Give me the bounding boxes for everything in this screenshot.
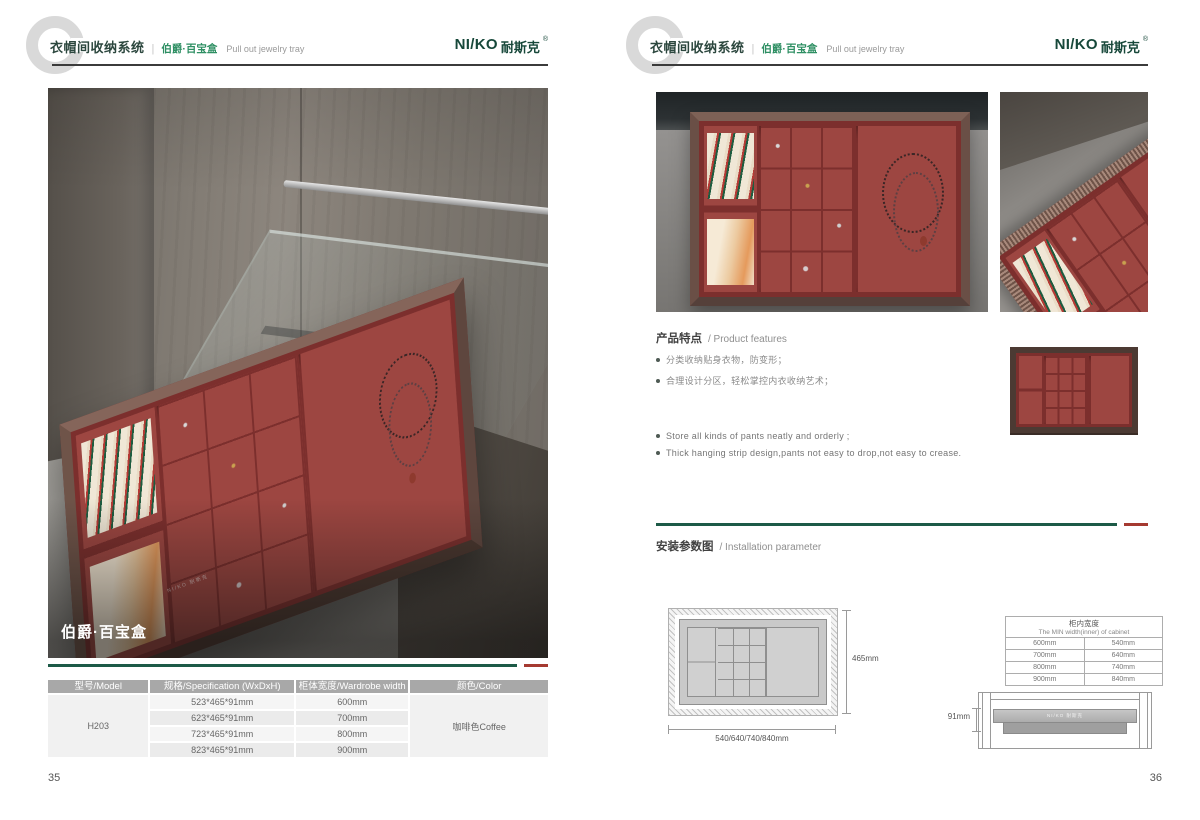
- features-title-en: / Product features: [708, 334, 787, 345]
- feature-text: 分类收纳贴身衣物，防变形；: [666, 353, 787, 366]
- brand-logo-latin: NI/KO: [455, 36, 498, 53]
- tray-profile: NI/KO 耐斯克: [993, 709, 1137, 723]
- feature-text: Thick hanging strip design,pants not eas…: [666, 448, 961, 458]
- detail-photo-corner: [1000, 92, 1148, 312]
- min-width-table: 柜内宽度 The MIN width(inner) of cabinet 600…: [1005, 616, 1163, 686]
- min-width-cell: 600mm: [1006, 638, 1085, 650]
- header-subtitle: Pull out jewelry tray: [826, 44, 904, 54]
- bullet-icon: [656, 358, 660, 362]
- tray-zone-grid: [761, 126, 856, 292]
- header-series: 伯爵·百宝盒: [161, 41, 217, 56]
- min-width-header: 柜内宽度 The MIN width(inner) of cabinet: [1006, 617, 1163, 638]
- header-title: 衣帽间收纳系统 | 伯爵·百宝盒 Pull out jewelry tray: [650, 37, 904, 56]
- feature-text: 合理设计分区，轻松掌控内衣收纳艺术；: [666, 374, 833, 387]
- width-dimension-label: 540/640/740/840mm: [668, 734, 836, 743]
- brand-logo-zh: 耐斯克: [501, 37, 540, 56]
- width-cell: 800mm: [296, 727, 408, 741]
- dimension-line-width: [668, 729, 836, 730]
- spec-cell: 823*465*91mm: [150, 743, 294, 757]
- column-header: 颜色/Color: [410, 680, 548, 693]
- column-header: 型号/Model: [48, 680, 148, 693]
- feature-item: Thick hanging strip design,pants not eas…: [656, 448, 961, 458]
- min-width-row: 600mm 540mm: [1006, 638, 1163, 650]
- tray-zone-open: [858, 126, 956, 292]
- brand-logo: NI/KO 耐斯克 ®: [455, 36, 548, 56]
- page-number: 36: [1150, 772, 1162, 784]
- features-title-zh: 产品特点: [656, 330, 702, 346]
- jewelry-tray-render: [1010, 347, 1138, 433]
- top-view-diagram: [668, 608, 838, 716]
- column-color: 颜色/Color 咖啡色Coffee: [410, 680, 548, 757]
- depth-dimension-label: 465mm: [852, 654, 879, 663]
- feature-item: 分类收纳贴身衣物，防变形；: [656, 353, 833, 366]
- feature-text: Store all kinds of pants neatly and orde…: [666, 431, 850, 441]
- tray-zone-left: [688, 628, 716, 696]
- column-header: 柜体宽度/Wardrobe width: [296, 680, 408, 693]
- header-rule: [52, 64, 548, 66]
- tray-body-profile: [1003, 722, 1127, 734]
- min-width-cell: 700mm: [1006, 650, 1085, 662]
- divider-green: [48, 664, 517, 667]
- width-cell: 600mm: [296, 695, 408, 709]
- spec-cell: 623*465*91mm: [150, 711, 294, 725]
- detail-photo-top-view: [656, 92, 988, 312]
- tray-zone-grid: [1046, 356, 1089, 424]
- brand-logo-latin: NI/KO: [1055, 36, 1098, 53]
- feature-item: Store all kinds of pants neatly and orde…: [656, 431, 961, 441]
- color-cell: 咖啡色Coffee: [410, 695, 548, 757]
- diagram-compartments: [688, 628, 818, 696]
- scarf-decor: [707, 133, 754, 199]
- features-bullets-en: Store all kinds of pants neatly and orde…: [656, 431, 961, 458]
- installation-title-zh: 安装参数图: [656, 538, 714, 554]
- header-separator: |: [752, 43, 755, 55]
- dimension-line-height: [976, 708, 977, 732]
- header-separator: |: [152, 43, 155, 55]
- hero-photo: NI/KO 耐斯克 伯爵·百宝盒: [48, 88, 548, 658]
- jewelry-tray: [690, 112, 970, 306]
- installation-title: 安装参数图 / Installation parameter: [656, 538, 821, 554]
- accent-divider: [656, 523, 1148, 526]
- spec-table: 型号/Model H203 规格/Specification (WxDxH) 5…: [48, 680, 548, 757]
- model-cell: H203: [48, 695, 148, 757]
- tray-zone-open: [769, 628, 818, 696]
- min-width-cell: 800mm: [1006, 662, 1085, 674]
- spec-cell: 723*465*91mm: [150, 727, 294, 741]
- tray-compartments: [704, 126, 956, 292]
- registered-mark: ®: [1143, 36, 1148, 43]
- width-cell: 900mm: [296, 743, 408, 757]
- min-width-header-row: 柜内宽度 The MIN width(inner) of cabinet: [1006, 617, 1163, 638]
- page-35: 衣帽间收纳系统 | 伯爵·百宝盒 Pull out jewelry tray N…: [0, 0, 600, 820]
- diagram-tray-frame: [679, 619, 827, 705]
- tray-zone-open: [1091, 356, 1129, 424]
- cabinet-top-line: [990, 699, 1140, 700]
- header-rule: [652, 64, 1148, 66]
- spec-cell: 523*465*91mm: [150, 695, 294, 709]
- registered-mark: ®: [543, 36, 548, 43]
- divider-red: [524, 664, 548, 667]
- bullet-icon: [656, 434, 660, 438]
- min-width-row: 900mm 840mm: [1006, 674, 1163, 686]
- necklace-decor: [893, 172, 939, 252]
- min-width-cell: 540mm: [1084, 638, 1163, 650]
- accent-divider: [48, 664, 548, 667]
- column-wardrobe-width: 柜体宽度/Wardrobe width 600mm 700mm 800mm 90…: [296, 680, 408, 757]
- product-thumbnail: [1008, 346, 1140, 434]
- bullet-icon: [656, 451, 660, 455]
- width-cell: 700mm: [296, 711, 408, 725]
- header-title: 衣帽间收纳系统 | 伯爵·百宝盒 Pull out jewelry tray: [50, 37, 304, 56]
- min-width-cell: 840mm: [1084, 674, 1163, 686]
- page-36: 衣帽间收纳系统 | 伯爵·百宝盒 Pull out jewelry tray N…: [600, 0, 1200, 820]
- catalog-spread: 衣帽间收纳系统 | 伯爵·百宝盒 Pull out jewelry tray N…: [0, 0, 1200, 820]
- height-dimension-label: 91mm: [938, 712, 970, 721]
- min-width-row: 700mm 640mm: [1006, 650, 1163, 662]
- tray-compartments: [1019, 356, 1129, 424]
- min-width-header-zh: 柜内宽度: [1006, 618, 1162, 629]
- brand-logo: NI/KO 耐斯克 ®: [1055, 36, 1148, 56]
- cabinet-side-panel: [1139, 693, 1148, 748]
- tray-zone-left: [704, 126, 759, 292]
- tray-brand-text: NI/KO 耐斯克: [1047, 713, 1083, 719]
- header-subtitle: Pull out jewelry tray: [226, 44, 304, 54]
- bullet-icon: [656, 379, 660, 383]
- page-number: 35: [48, 772, 60, 784]
- product-name-label: 伯爵·百宝盒: [61, 621, 147, 642]
- features-title: 产品特点 / Product features: [656, 330, 787, 346]
- column-specification: 规格/Specification (WxDxH) 523*465*91mm 62…: [150, 680, 294, 757]
- photo-vignette: [48, 88, 548, 658]
- installation-title-en: / Installation parameter: [720, 542, 822, 553]
- min-width-cell: 740mm: [1084, 662, 1163, 674]
- side-view-diagram: NI/KO 耐斯克: [978, 692, 1152, 749]
- dimension-line-depth: [846, 610, 847, 714]
- tray-zone-grid: [718, 628, 767, 696]
- min-width-cell: 640mm: [1084, 650, 1163, 662]
- divider-green: [656, 523, 1117, 526]
- divider-red: [1124, 523, 1148, 526]
- column-model: 型号/Model H203: [48, 680, 148, 757]
- tray-zone-left: [1019, 356, 1044, 424]
- bead-decor: [920, 236, 927, 246]
- header-category: 衣帽间收纳系统: [50, 37, 145, 56]
- features-bullets-zh: 分类收纳贴身衣物，防变形； 合理设计分区，轻松掌控内衣收纳艺术；: [656, 353, 833, 387]
- cabinet-side-panel: [982, 693, 991, 748]
- feature-item: 合理设计分区，轻松掌控内衣收纳艺术；: [656, 374, 833, 387]
- header-category: 衣帽间收纳系统: [650, 37, 745, 56]
- brand-logo-zh: 耐斯克: [1101, 37, 1140, 56]
- diagram-tray: [687, 627, 819, 697]
- min-width-row: 800mm 740mm: [1006, 662, 1163, 674]
- min-width-cell: 900mm: [1006, 674, 1085, 686]
- towel-decor: [707, 219, 754, 285]
- column-header: 规格/Specification (WxDxH): [150, 680, 294, 693]
- header-series: 伯爵·百宝盒: [761, 41, 817, 56]
- min-width-header-en: The MIN width(inner) of cabinet: [1006, 629, 1162, 636]
